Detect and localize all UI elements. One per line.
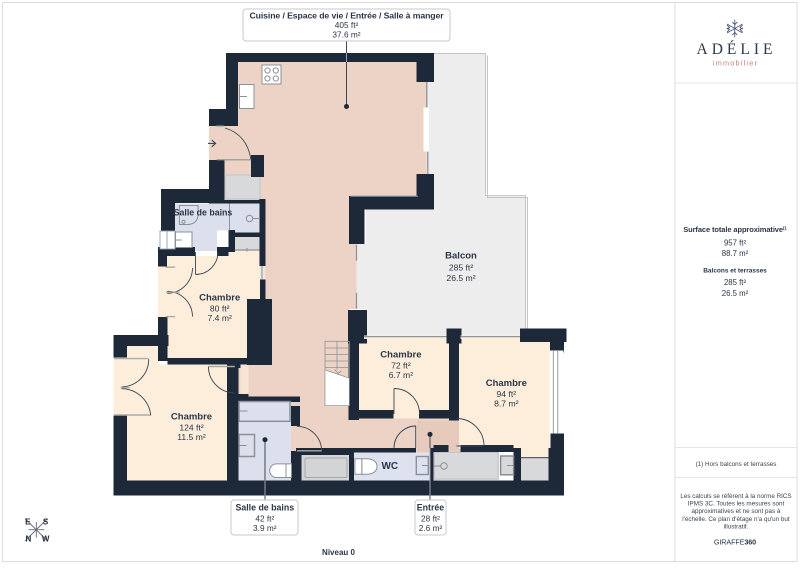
- svg-text:957 ft²: 957 ft²: [724, 239, 747, 248]
- svg-text:2.6 m²: 2.6 m²: [419, 523, 443, 533]
- svg-text:7.4 m²: 7.4 m²: [208, 313, 232, 323]
- svg-text:IPMS 3C. Toutes les mesures so: IPMS 3C. Toutes les mesures sont: [688, 501, 785, 508]
- svg-text:26.5 m²: 26.5 m²: [446, 273, 475, 283]
- svg-text:(1) Hors balcons et terrasses: (1) Hors balcons et terrasses: [696, 461, 777, 468]
- svg-text:Cuisine / Espace de vie / Entr: Cuisine / Espace de vie / Entrée / Salle…: [249, 11, 444, 21]
- svg-text:Surface totale approximative(1: Surface totale approximative(1: [683, 225, 787, 234]
- svg-text:26.5 m²: 26.5 m²: [722, 289, 749, 298]
- svg-text:E: E: [25, 518, 31, 527]
- svg-text:72 ft²: 72 ft²: [391, 361, 411, 371]
- svg-text:Chambre: Chambre: [486, 378, 527, 389]
- svg-text:Niveau 0: Niveau 0: [322, 548, 355, 557]
- svg-text:WC: WC: [381, 461, 398, 472]
- svg-text:124 ft²: 124 ft²: [179, 423, 204, 433]
- svg-text:Chambre: Chambre: [380, 350, 421, 361]
- svg-text:Salle de bains: Salle de bains: [174, 208, 233, 218]
- svg-text:Balcon: Balcon: [445, 251, 477, 262]
- svg-text:Chambre: Chambre: [199, 293, 240, 304]
- svg-text:Les calculs se réfèrent à la n: Les calculs se réfèrent à la norme RICS: [680, 493, 791, 500]
- svg-text:Entrée: Entrée: [417, 503, 444, 513]
- svg-text:Balcons et terrasses: Balcons et terrasses: [703, 268, 767, 275]
- svg-text:N: N: [26, 535, 32, 544]
- svg-text:Salle de bains: Salle de bains: [235, 503, 294, 513]
- svg-text:Chambre: Chambre: [171, 412, 212, 423]
- svg-text:GIRAFFE360: GIRAFFE360: [714, 538, 756, 547]
- svg-text:approximatives et ne sont pas: approximatives et ne sont pas à: [692, 508, 781, 515]
- svg-text:11.5 m²: 11.5 m²: [177, 432, 206, 442]
- svg-text:3.9 m²: 3.9 m²: [253, 523, 277, 533]
- svg-text:W: W: [42, 535, 50, 544]
- svg-text:80 ft²: 80 ft²: [210, 304, 230, 314]
- svg-text:37.6 m²: 37.6 m²: [332, 30, 360, 40]
- svg-text:ADÉLIE: ADÉLIE: [697, 41, 777, 58]
- svg-text:285 ft²: 285 ft²: [724, 278, 747, 287]
- svg-text:immobilier: immobilier: [713, 59, 758, 68]
- svg-text:l'échelle. Ce plan d'étage n'a: l'échelle. Ce plan d'étage n'a qu'un but: [682, 516, 790, 523]
- svg-text:94 ft²: 94 ft²: [497, 389, 517, 399]
- svg-text:88.7 m²: 88.7 m²: [722, 249, 749, 258]
- svg-text:illustratif.: illustratif.: [724, 523, 749, 530]
- svg-text:S: S: [43, 518, 49, 527]
- svg-text:285 ft²: 285 ft²: [449, 263, 474, 273]
- svg-text:6.7 m²: 6.7 m²: [389, 370, 413, 380]
- svg-text:8.7 m²: 8.7 m²: [494, 399, 518, 409]
